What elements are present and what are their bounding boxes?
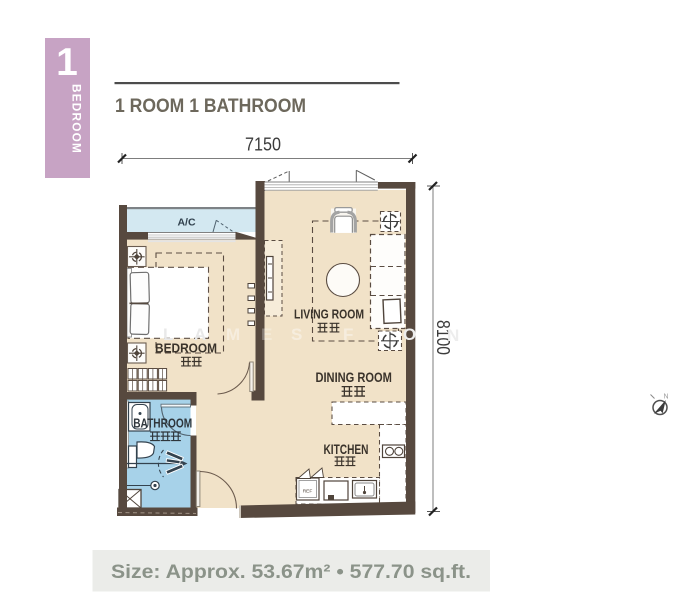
svg-text:F: F — [343, 325, 353, 344]
svg-text:BEDROOM: BEDROOM — [70, 84, 84, 154]
svg-text:DINING ROOM: DINING ROOM — [315, 369, 392, 385]
svg-text:N: N — [664, 394, 669, 401]
svg-text:E: E — [261, 325, 272, 344]
svg-text:1: 1 — [56, 41, 78, 84]
svg-text:Size: Approx. 53.67m² • 577.: Size: Approx. 53.67m² • 577.70 sq.ft. — [111, 561, 471, 583]
svg-text:O: O — [403, 325, 416, 344]
svg-text:S: S — [291, 325, 302, 344]
svg-text:BEDROOM: BEDROOM — [155, 341, 217, 356]
svg-text:1 ROOM 1 BATHROOM: 1 ROOM 1 BATHROOM — [115, 96, 306, 117]
svg-text:N: N — [447, 326, 459, 345]
svg-text:A/C: A/C — [177, 217, 196, 229]
svg-text:M: M — [226, 325, 240, 344]
svg-text:KITCHEN: KITCHEN — [324, 441, 369, 457]
svg-text:REF: REF — [303, 489, 313, 495]
svg-text:BATHROOM: BATHROOM — [133, 417, 192, 431]
svg-text:7150: 7150 — [245, 134, 281, 155]
svg-text:LIVING ROOM: LIVING ROOM — [294, 307, 364, 322]
